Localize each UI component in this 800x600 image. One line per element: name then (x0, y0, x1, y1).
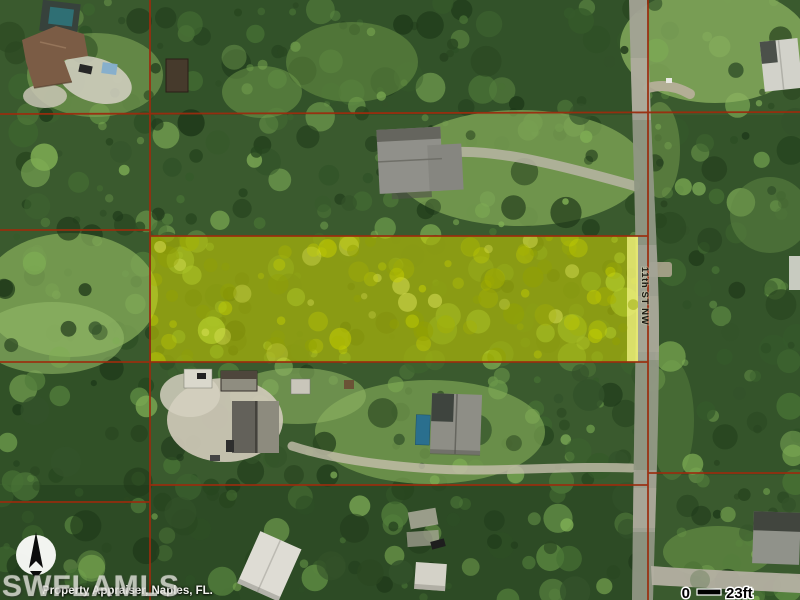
scale-start-label: 0 (682, 585, 690, 600)
highlighted-parcel (147, 228, 639, 371)
aerial-map-view[interactable]: 11th ST NW 0 23ft Property Appraiser, Na… (0, 0, 800, 600)
street-label: 11th ST NW (639, 267, 650, 325)
scale-bar-segment (697, 589, 721, 595)
map-canvas: 11th ST NW 0 23ft (0, 0, 800, 600)
scale-end-label: 23ft (726, 585, 753, 600)
